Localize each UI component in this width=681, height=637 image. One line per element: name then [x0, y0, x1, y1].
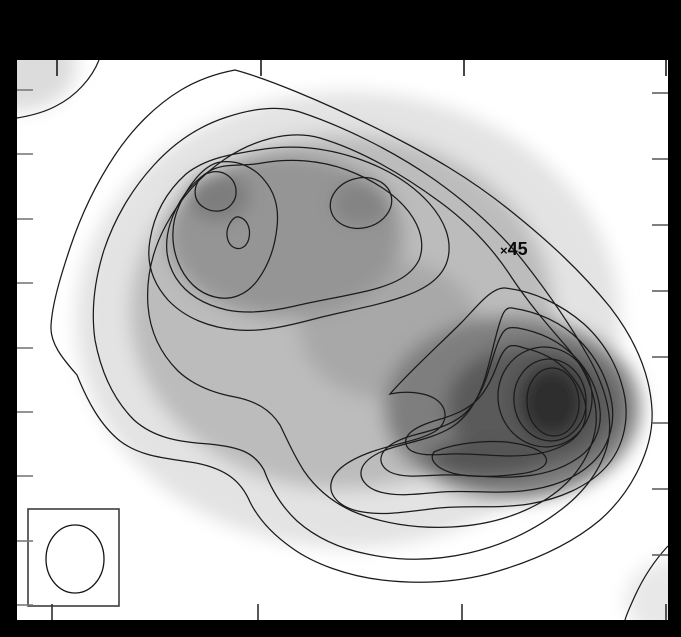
contour-map-figure: ×45 [0, 0, 681, 637]
marker-45: ×45 [500, 240, 528, 258]
plot-canvas [0, 0, 681, 637]
marker-label: 45 [508, 240, 528, 258]
cross-marker-icon: × [500, 244, 508, 257]
